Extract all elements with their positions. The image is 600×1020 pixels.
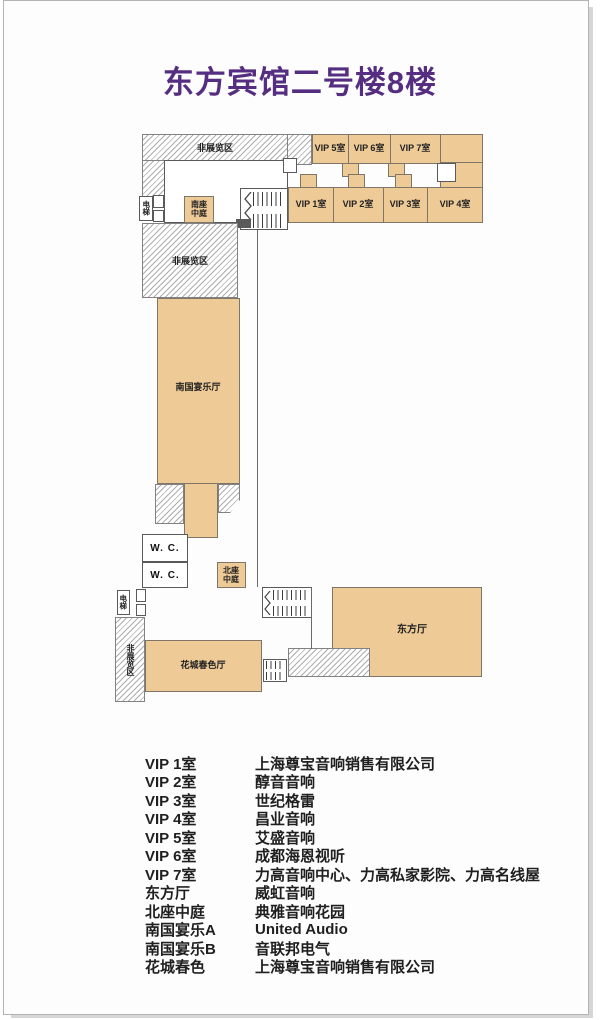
legend-room-name: 花城春色 xyxy=(145,956,255,977)
legend-row: VIP 5室 艾盛音响 xyxy=(145,828,565,847)
stairs-lower-flight xyxy=(273,606,307,616)
legend-company: United Audio xyxy=(255,921,348,938)
corridor-end-notch xyxy=(437,163,456,182)
room-divider xyxy=(383,188,384,222)
stairs-upper-flight xyxy=(253,192,283,206)
area-non-exhibit-top: 非展览区 xyxy=(142,134,288,161)
stairs-upper-flight xyxy=(253,214,283,228)
legend-row: VIP 4室 昌业音响 xyxy=(145,810,565,829)
legend-row: 南国宴乐B 音联邦电气 xyxy=(145,939,565,958)
legend-row: VIP 7室 力高音响中心、力高私家影院、力高名线屋 xyxy=(145,865,565,884)
area-label-non-exhibit-bottom: 非展览区 xyxy=(126,644,134,676)
elevator-shaft xyxy=(153,195,164,208)
room-label-wc-lower: W. C. xyxy=(150,570,179,581)
room-label-vip7: VIP 7室 xyxy=(400,144,431,154)
legend-row: VIP 1室 上海尊宝音响销售有限公司 xyxy=(145,754,565,773)
room-label-vip4: VIP 4室 xyxy=(440,200,471,210)
vip-left-notch xyxy=(283,158,297,173)
legend-row: VIP 3室 世纪格雷 xyxy=(145,791,565,810)
hatch-corner-right xyxy=(218,484,240,513)
area-non-exhibit-mid: 非展览区 xyxy=(142,223,238,298)
stairs-lower-flight xyxy=(273,590,307,600)
door-tab xyxy=(348,174,365,188)
room-label-vip3: VIP 3室 xyxy=(390,200,421,210)
hatch-corner-left xyxy=(155,484,184,524)
door-tab xyxy=(395,174,412,188)
hatch-bottom-block xyxy=(288,648,370,677)
stair-break-icon xyxy=(264,591,272,615)
legend-row: 南国宴乐A United Audio xyxy=(145,921,565,940)
legend: VIP 1室 上海尊宝音响销售有限公司 VIP 2室 醇音音响 VIP 3室 世… xyxy=(145,754,565,976)
elevator-lower-label: 电梯 xyxy=(119,595,127,610)
mini-steps-flight xyxy=(266,672,284,680)
area-label-non-exhibit-mid: 非展览区 xyxy=(172,254,208,267)
mini-steps-flight xyxy=(266,661,284,669)
room-label-flower-city: 花城春色厅 xyxy=(180,661,225,671)
legend-row: VIP 6室 成都海恩视听 xyxy=(145,847,565,866)
corridor-wall xyxy=(257,230,258,587)
room-label-vip2: VIP 2室 xyxy=(343,200,374,210)
wall-segment xyxy=(236,219,251,228)
room-divider xyxy=(390,135,391,163)
room-wc-lower: W. C. xyxy=(142,562,188,588)
room-label-vip6: VIP 6室 xyxy=(354,144,385,154)
room-label-south-banquet: 南国宴乐厅 xyxy=(175,383,220,393)
elevator-shaft xyxy=(136,604,146,616)
room-south-banquet-stub xyxy=(184,483,218,538)
legend-company: 典雅音响花园 xyxy=(255,901,345,922)
legend-row: VIP 2室 醇音音响 xyxy=(145,773,565,792)
legend-row: 花城春色 上海尊宝音响销售有限公司 xyxy=(145,958,565,977)
stair-break-icon xyxy=(243,192,253,220)
room-divider xyxy=(348,135,349,163)
room-divider xyxy=(440,135,441,163)
elevator-shaft xyxy=(153,210,164,222)
room-divider xyxy=(333,188,334,222)
legend-row: 北座中庭 典雅音响花园 xyxy=(145,902,565,921)
legend-company: 上海尊宝音响销售有限公司 xyxy=(255,956,435,977)
room-label-south-atrium: 南座中庭 xyxy=(188,200,210,218)
legend-row: 东方厅 威虹音响 xyxy=(145,884,565,903)
room-label-oriental-hall: 东方厅 xyxy=(397,625,427,636)
stair-wall xyxy=(311,587,312,649)
area-non-exhibit-top-strip xyxy=(142,160,165,197)
room-label-vip5: VIP 5室 xyxy=(315,144,346,154)
elevator-upper-label: 电梯 xyxy=(142,201,150,216)
area-non-exhibit-bottom: 非展览区 xyxy=(115,617,145,702)
area-label-non-exhibit-top: 非展览区 xyxy=(197,141,233,154)
room-wc-upper: W. C. xyxy=(142,534,188,562)
room-label-vip1: VIP 1室 xyxy=(296,200,327,210)
room-label-wc-upper: W. C. xyxy=(150,543,179,554)
room-label-north-atrium: 北座中庭 xyxy=(220,566,242,584)
room-divider xyxy=(427,188,428,222)
elevator-shaft xyxy=(136,589,146,602)
door-tab xyxy=(300,174,317,188)
